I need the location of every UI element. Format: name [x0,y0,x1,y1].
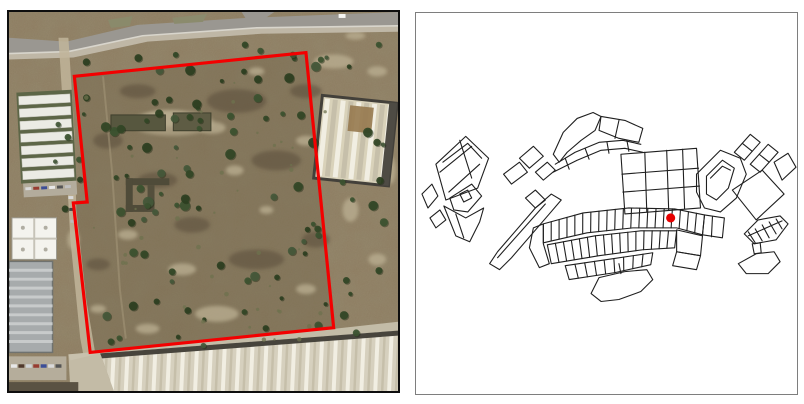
satellite-photo [9,12,398,391]
cadastral-map [416,13,797,394]
white-building [12,218,57,260]
location-map-panel [415,12,798,395]
warehouse-right [314,95,398,186]
site-location-marker [666,213,675,222]
figure [0,0,804,404]
greenhouses [16,90,77,198]
satellite-photo-panel [7,10,400,393]
